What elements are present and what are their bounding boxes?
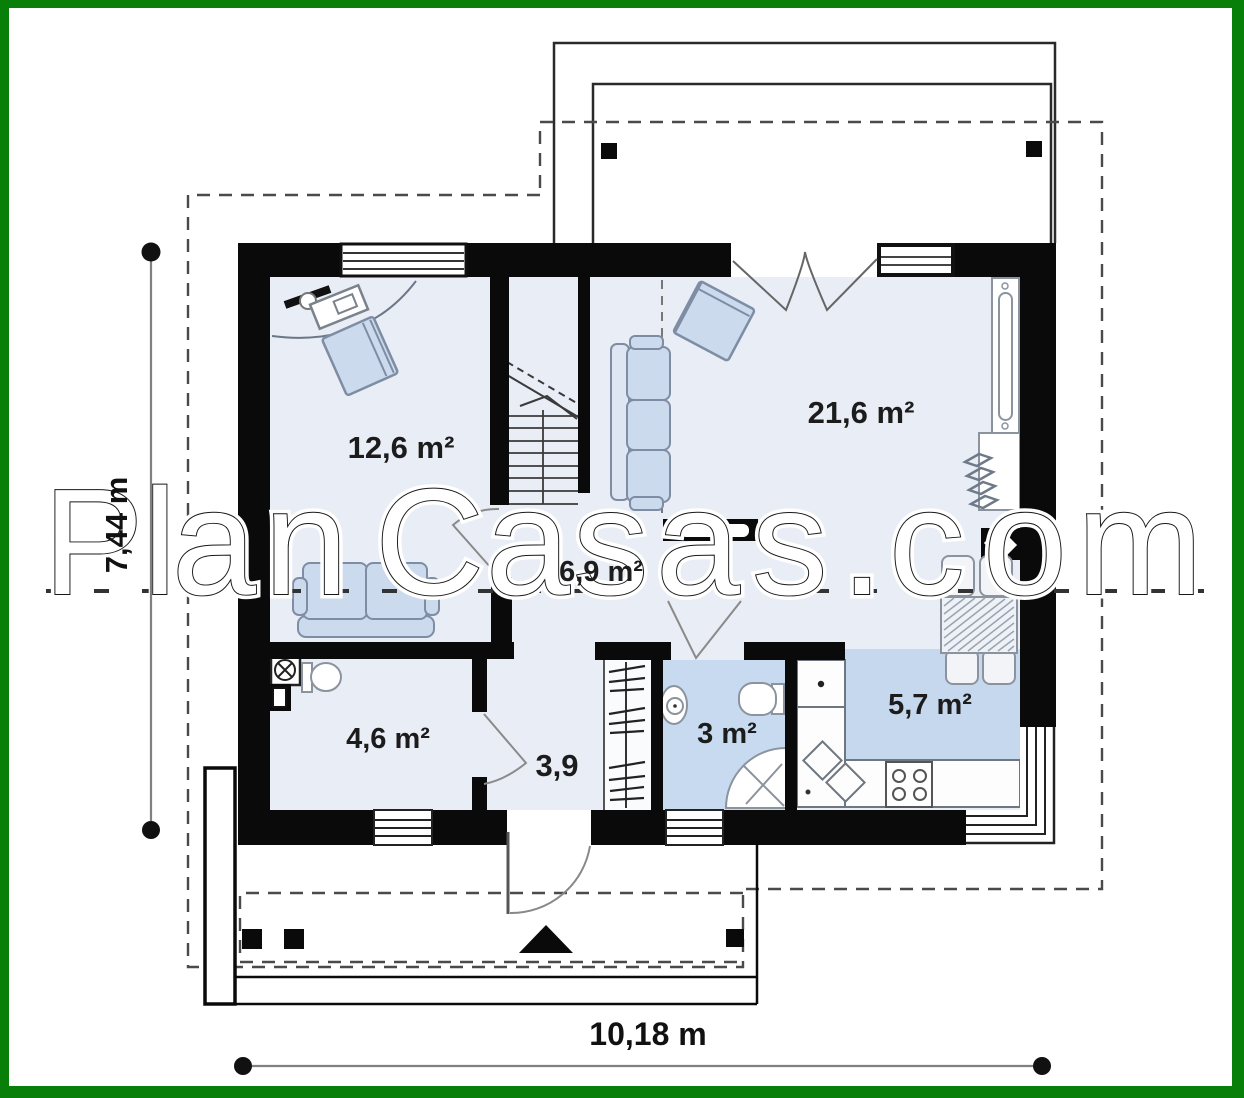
svg-text:21,6 m²: 21,6 m²	[808, 395, 915, 430]
svg-text:12,6 m²: 12,6 m²	[348, 430, 455, 465]
svg-text:10,18 m: 10,18 m	[589, 1016, 706, 1052]
svg-text:6,9 m²: 6,9 m²	[559, 556, 643, 588]
svg-text:3 m²: 3 m²	[697, 718, 757, 750]
svg-text:7,44 m: 7,44 m	[99, 477, 134, 574]
svg-text:PlanCasas.com: PlanCasas.com	[43, 457, 1203, 626]
svg-text:3,9: 3,9	[535, 748, 578, 783]
svg-text:5,7 m²: 5,7 m²	[888, 689, 972, 721]
svg-text:4,6 m²: 4,6 m²	[346, 723, 430, 755]
